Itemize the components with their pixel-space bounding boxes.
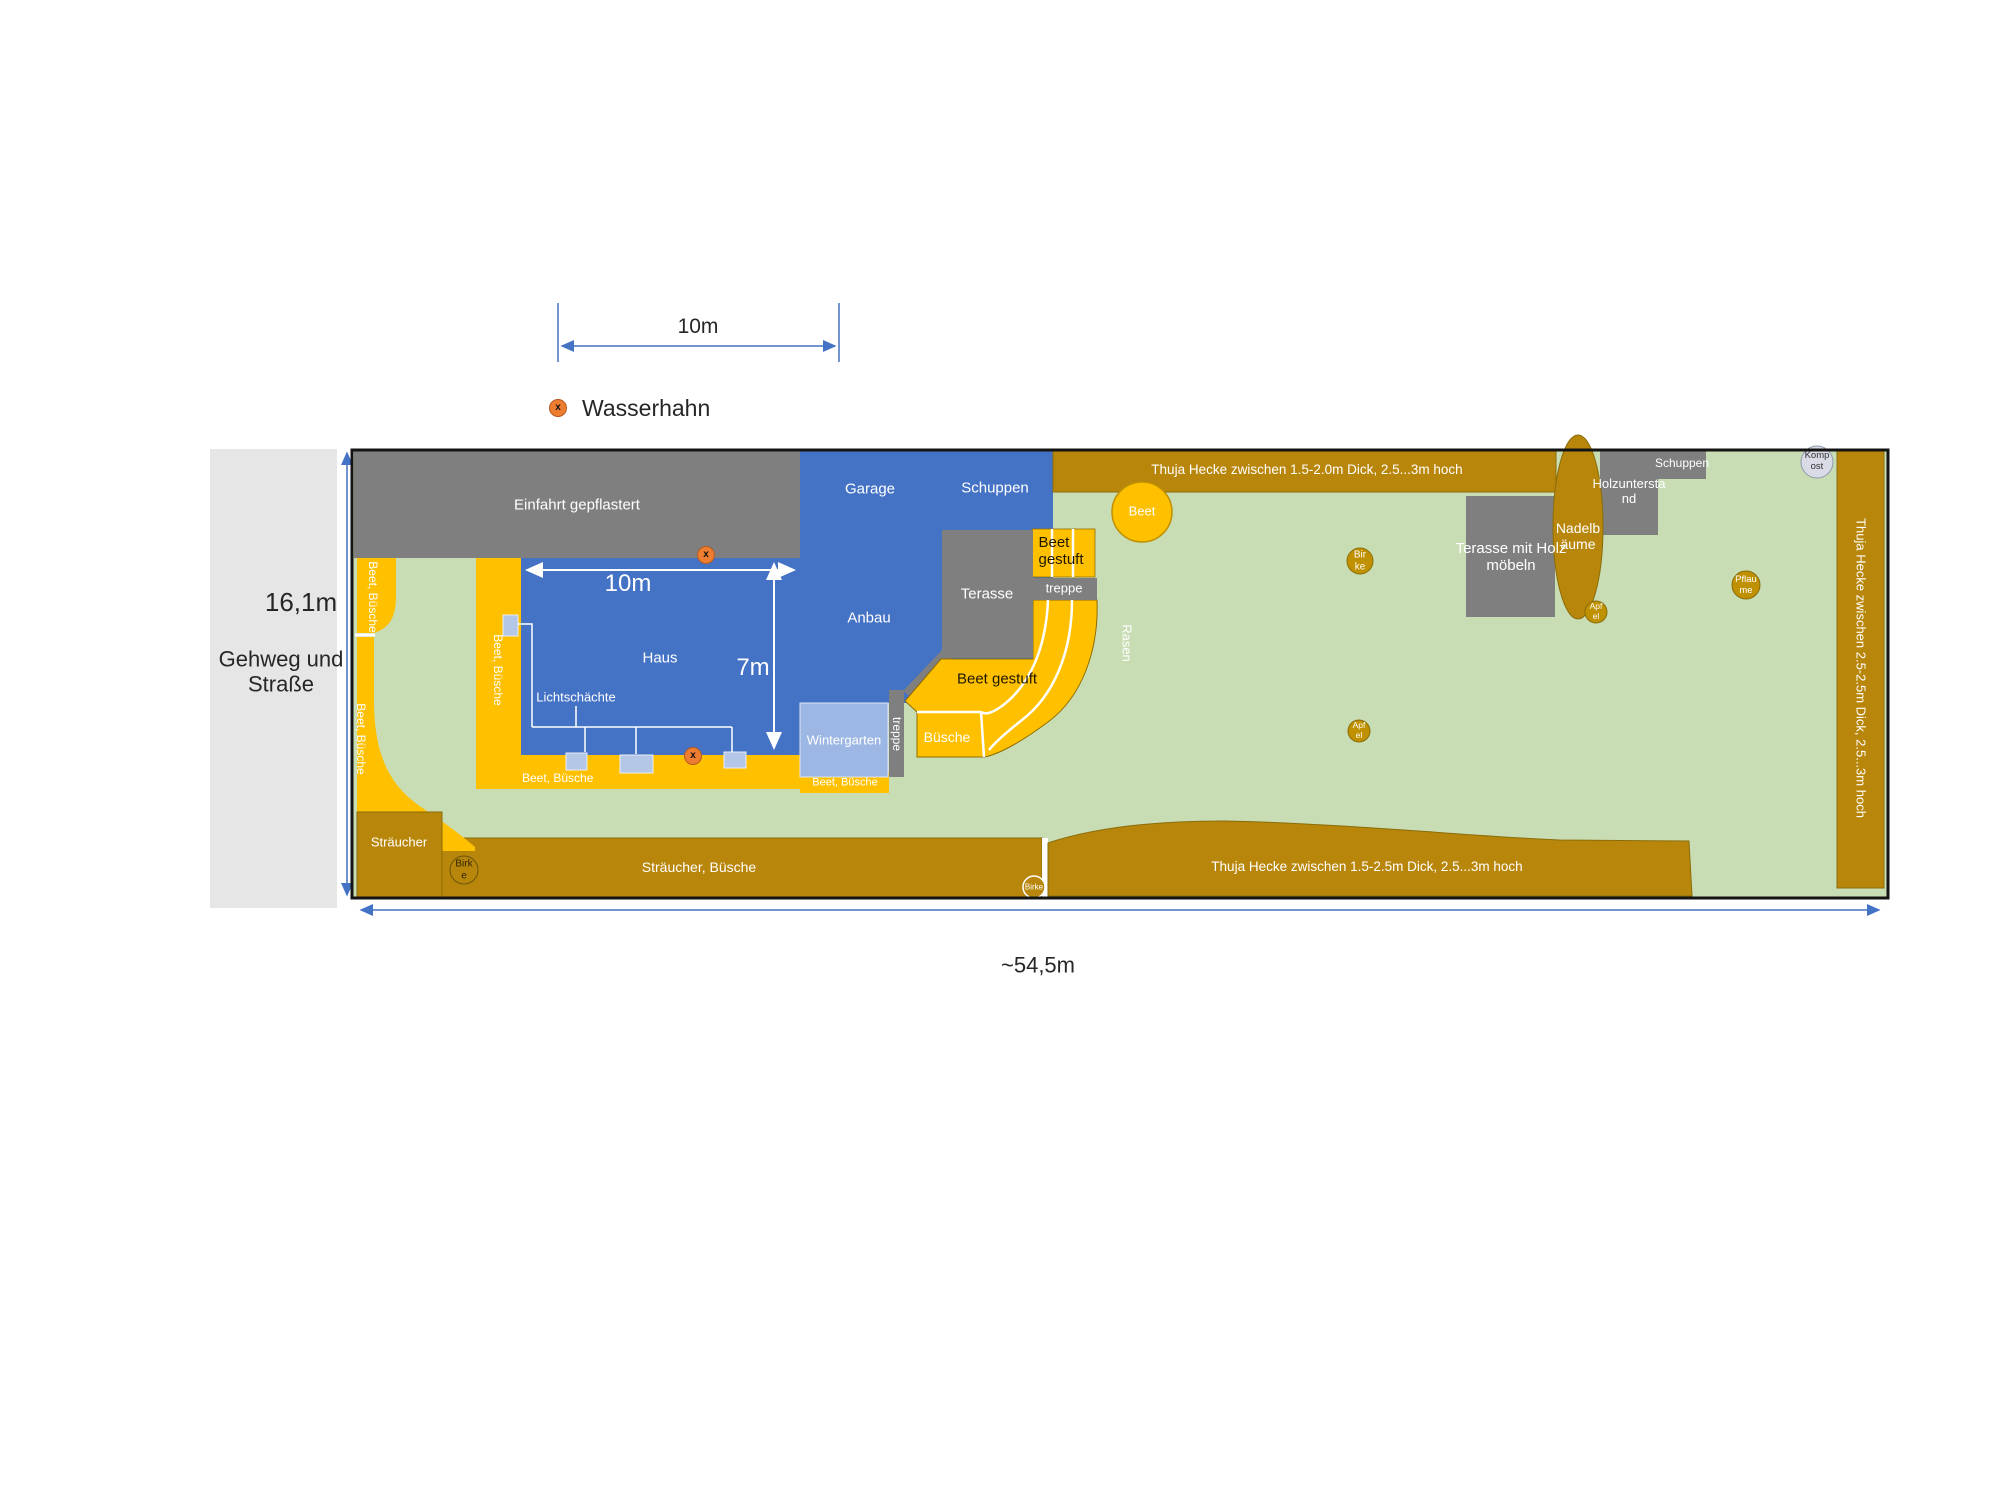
wintergarten-building (800, 703, 888, 777)
garden-site-plan: x x x 10m Wasserhahn 16,1m Gehweg und St… (0, 0, 2000, 1500)
birch-tree-left (450, 856, 478, 884)
stairs-horizontal (1032, 578, 1097, 600)
birch-tree-bottom (1023, 876, 1045, 898)
bed-strip-2 (476, 558, 521, 780)
haus-building (521, 558, 800, 755)
beet-circle (1112, 482, 1172, 542)
hedge-bottom-left (442, 838, 1042, 897)
water-tap-legend-icon: x (549, 399, 567, 417)
conifers-ellipse (1553, 435, 1603, 619)
stepped-bed-top (1032, 529, 1095, 577)
shrub-corner-area (357, 812, 442, 897)
terrace-wood-area (1466, 496, 1555, 617)
apple-tree-right (1585, 601, 1607, 623)
shed-right-area (1658, 450, 1706, 479)
lightwell-4 (724, 752, 746, 768)
sidewalk-area (210, 449, 337, 908)
lightwell-3 (620, 755, 653, 773)
terrace-area (942, 530, 1033, 658)
apple-tree-mid (1348, 720, 1370, 742)
water-tap-marker-bottom: x (684, 747, 702, 765)
plum-tree (1732, 571, 1760, 599)
plan-drawing (0, 0, 2000, 1500)
stairs-vertical (889, 690, 904, 777)
hedge-right (1837, 450, 1884, 888)
birch-tree-mid (1347, 548, 1373, 574)
water-tap-marker-top: x (697, 546, 715, 564)
wood-shelter-area (1600, 450, 1658, 535)
lightwell-1 (503, 615, 518, 636)
lightwell-2 (566, 753, 587, 770)
driveway-area (354, 450, 800, 558)
